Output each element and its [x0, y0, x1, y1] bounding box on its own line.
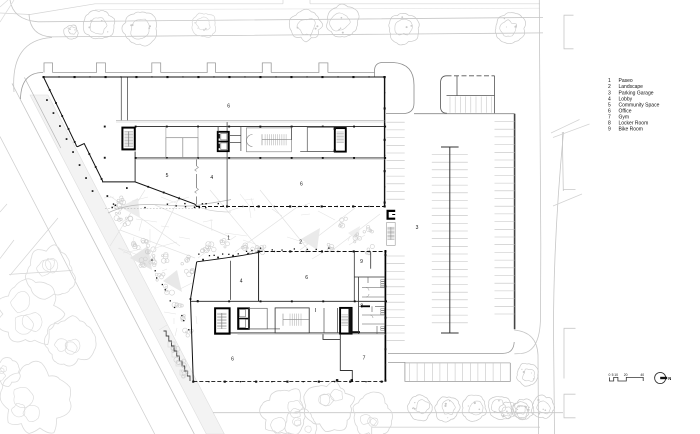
svg-text:20: 20 — [624, 373, 628, 377]
svg-text:10: 10 — [614, 373, 618, 377]
svg-text:9: 9 — [608, 126, 611, 132]
svg-text:40: 40 — [640, 373, 644, 377]
svg-text:7: 7 — [363, 355, 366, 361]
svg-text:5: 5 — [608, 102, 611, 108]
svg-text:Bike Room: Bike Room — [619, 126, 643, 132]
svg-text:4: 4 — [240, 279, 243, 285]
svg-text:6: 6 — [305, 275, 308, 281]
svg-text:5: 5 — [166, 173, 169, 179]
svg-text:2: 2 — [299, 239, 302, 245]
svg-text:6: 6 — [300, 181, 303, 187]
svg-text:0: 0 — [608, 373, 610, 377]
svg-text:6: 6 — [231, 357, 234, 363]
svg-text:3: 3 — [416, 225, 419, 231]
svg-text:9: 9 — [360, 259, 363, 265]
svg-text:2: 2 — [608, 84, 611, 90]
svg-text:Landscape: Landscape — [619, 84, 644, 90]
svg-text:6: 6 — [227, 103, 230, 109]
svg-text:8: 8 — [360, 304, 363, 310]
svg-text:4: 4 — [210, 175, 213, 181]
svg-text:Community Space: Community Space — [619, 102, 660, 108]
svg-text:1: 1 — [227, 235, 230, 241]
svg-text:N: N — [668, 376, 671, 381]
